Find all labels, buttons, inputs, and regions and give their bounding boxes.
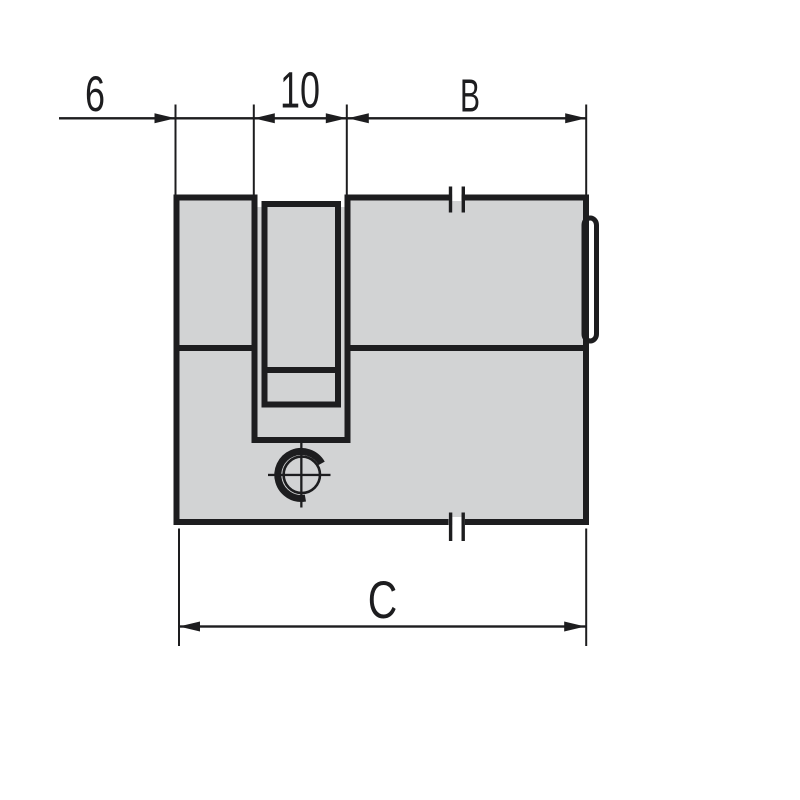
svg-text:C: C (368, 571, 398, 630)
svg-text:10: 10 (280, 62, 320, 119)
svg-text:6: 6 (85, 66, 105, 122)
svg-text:B: B (460, 70, 480, 122)
